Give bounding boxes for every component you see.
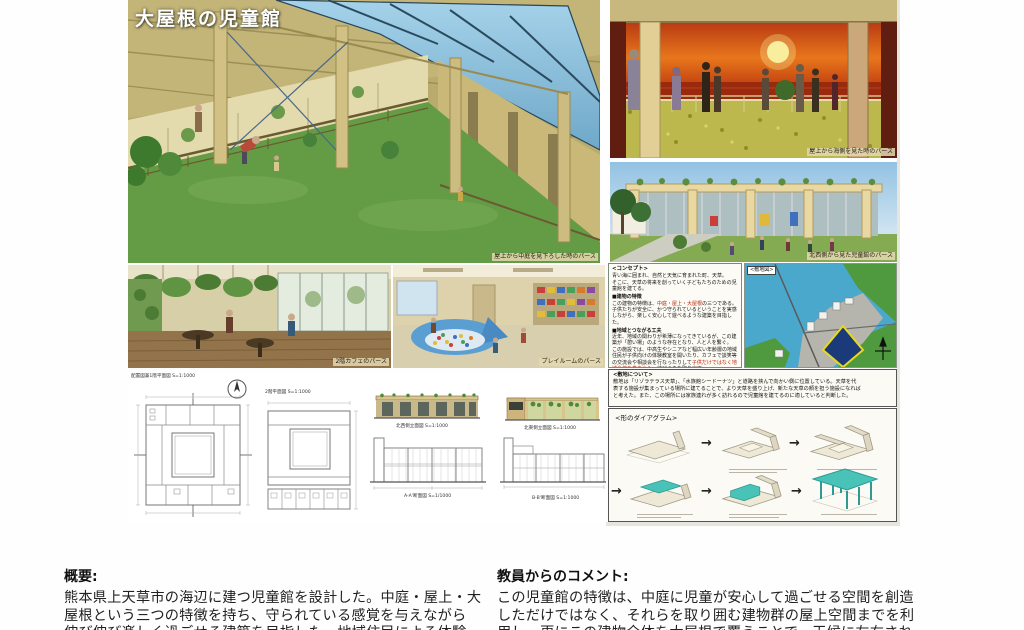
caption-exterior-perspective: 北西側から見た児童館のパース	[807, 252, 895, 260]
caption-cafe-perspective: 2階カフェのパース	[333, 358, 389, 366]
exterior-perspective-panel: 北西側から見た児童館のパース	[610, 162, 897, 262]
massing-step-2	[717, 423, 785, 465]
sunset-perspective-image	[610, 0, 897, 158]
teacher-comment-line: 用し、更にこの建物全体を大屋根で覆うことで、天候に左右され	[497, 625, 927, 630]
cafe-perspective-panel: 2階カフェのパース	[128, 265, 391, 368]
arrow-icon: →	[789, 437, 800, 450]
site-about-line: 敷地は「リゾラテラス天草」、「水族館シードーナツ」と道路を挟んで向かい側に位置し…	[613, 379, 892, 386]
main-perspective-image	[128, 0, 600, 263]
teacher-comment-line: しただけではなく、それらを取り囲む建物群の屋上空間までを利	[497, 608, 927, 626]
plan2-label: 2階平面図 S=1:1000	[265, 390, 311, 396]
concept-text: この建物の特徴は、	[612, 301, 657, 307]
concept-text-red: 中庭・屋上・大屋根	[657, 301, 702, 307]
elevation-ne-drawing	[505, 396, 600, 424]
drawings-panel: 配置図兼1階平面図 S=1:1000	[128, 372, 606, 524]
site-about-block: <敷地について> 敷地は「リゾラテラス天草」、「水族館シードーナツ」と道路を挟ん…	[608, 369, 897, 407]
sun-icon	[767, 41, 789, 63]
poster-title: 大屋根の児童館	[135, 4, 282, 31]
overview-line: 屋根という三つの特徴を持ち、守られている感覚を与えながら	[64, 608, 488, 626]
section-b-drawing	[500, 436, 606, 490]
concept-line: 近年、地域の関わりが希薄になってきているが、この建築が「憩い場」のような存在とな…	[612, 334, 738, 347]
site-about-heading: <敷地について>	[613, 372, 892, 379]
elevation-ne-label: 北東側立面図 S=1:1000	[524, 426, 576, 432]
cafe-perspective-image	[128, 265, 391, 368]
teacher-comment-heading: 教員からのコメント:	[497, 566, 927, 586]
exterior-perspective-image	[610, 162, 897, 262]
arrow-icon: →	[701, 437, 712, 450]
massing-step-3	[805, 422, 877, 465]
site-plan-drawing	[132, 389, 254, 521]
concept-line: 子供たちが安全に、かつ守られているということを実感しながら、楽しく安心して遊べる…	[612, 307, 738, 326]
second-floor-plan-drawing	[260, 397, 360, 517]
concept-line: そこに、天草の将来を創っていく子どもたちのための児童館を建てる。	[612, 280, 738, 293]
concept-text-block: <コンセプト> 青い海に囲まれ、自然と天気に育まれた町、天草。 そこに、天草の将…	[608, 263, 742, 368]
massing-step-5	[717, 471, 787, 513]
site-map-panel: <敷地図>	[744, 263, 897, 368]
teacher-comment-section: 教員からのコメント: この児童館の特徴は、中庭に児童が安心して過ごせる空間を創造…	[497, 566, 927, 630]
overview-line: 伸び伸び楽しく過ごせる建築を目指した。地域住民による体験	[64, 625, 488, 630]
sheet-edge-right	[897, 0, 900, 524]
overview-section: 概要: 熊本県上天草市の海辺に建つ児童館を設計した。中庭・屋上・大 屋根という三…	[64, 566, 488, 630]
concept-heading: <コンセプト>	[612, 266, 738, 272]
arrow-icon: →	[791, 485, 802, 498]
form-diagram-block: <形のダイアグラム> → →	[608, 408, 897, 522]
overview-heading: 概要:	[64, 566, 488, 586]
massing-step-4	[625, 471, 697, 513]
section-a-label: A-A'断面図 S=1/1000	[404, 494, 451, 500]
overview-line: 熊本県上天草市の海辺に建つ児童館を設計した。中庭・屋上・大	[64, 590, 488, 608]
elevation-nw-drawing	[374, 392, 480, 422]
sunset-perspective-panel: 屋上から海側を見た時のパース	[610, 0, 897, 158]
arrow-icon: →	[611, 485, 622, 498]
massing-step-6	[807, 467, 883, 513]
teacher-comment-line: この児童館の特徴は、中庭に児童が安心して過ごせる空間を創造	[497, 590, 927, 608]
section-a-drawing	[370, 434, 486, 492]
concept-line: 青い海に囲まれ、自然と天気に育まれた町、天草。	[612, 273, 738, 279]
sheet-edge-bottom	[606, 522, 900, 526]
concept-text: 、結びつきを取り戻す。	[652, 366, 707, 368]
presentation-board: 大屋根の児童館 屋上から中庭を見下ろした時のパース	[0, 0, 1024, 630]
caption-main-perspective: 屋上から中庭を見下ろした時のパース	[492, 253, 598, 261]
section-b-label: B-B'断面図 S=1:1000	[532, 496, 579, 502]
site-plan-label: 配置図兼1階平面図 S=1:1000	[131, 374, 195, 380]
site-map-image	[745, 264, 896, 367]
playroom-perspective-panel: プレイルームのパース	[393, 265, 605, 368]
massing-step-1	[623, 425, 695, 467]
playroom-perspective-image	[393, 265, 605, 368]
elevation-nw-label: 北西側立面図 S=1:1000	[396, 424, 448, 430]
concept-text: の三つである。	[702, 301, 737, 307]
form-diagram-heading: <形のダイアグラム>	[615, 412, 677, 422]
concept-line: この施設では、中高生やシニアなど幅広い年齢層の地域住民が子供向けの体験教室を開い…	[612, 347, 738, 368]
site-map-heading: <敷地図>	[747, 266, 776, 275]
main-perspective-panel: 大屋根の児童館 屋上から中庭を見下ろした時のパース	[128, 0, 600, 263]
arrow-icon: →	[701, 485, 712, 498]
site-about-line: と考えた。また、この場所には家族連れが多く訪れるので児童館を建てるのに適している…	[613, 393, 892, 400]
caption-sunset-perspective: 屋上から海側を見た時のパース	[807, 148, 895, 156]
concept-line: この建物の特徴は、中庭・屋上・大屋根の三つである。	[612, 301, 738, 307]
caption-playroom-perspective: プレイルームのパース	[539, 358, 603, 366]
